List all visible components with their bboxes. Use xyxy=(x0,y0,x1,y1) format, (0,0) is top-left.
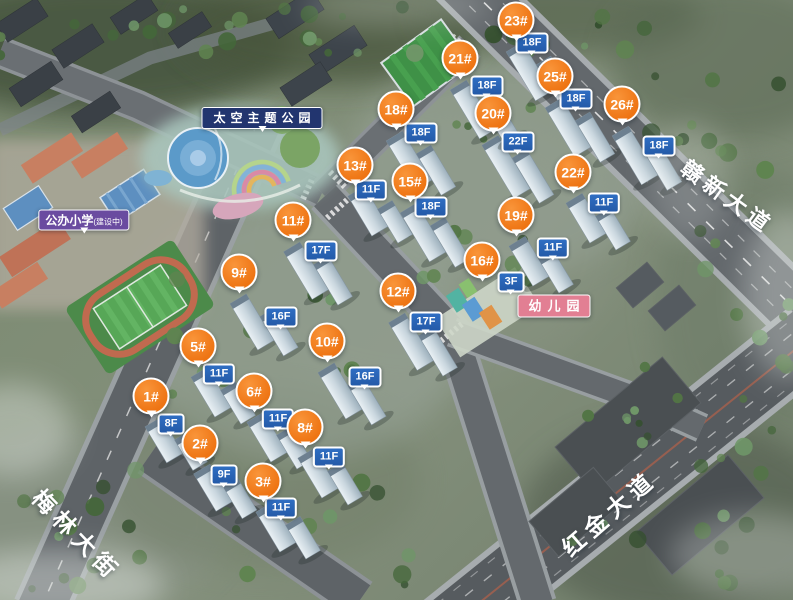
building-marker-18[interactable]: 18# xyxy=(378,91,415,128)
floor-badge-18: 18F xyxy=(405,123,438,144)
kindergarten-label: 幼儿园 xyxy=(517,295,590,318)
building-marker-13[interactable]: 13# xyxy=(337,147,374,184)
building-marker-22[interactable]: 22# xyxy=(555,154,592,191)
floor-badge-19: 11F xyxy=(537,238,569,259)
floor-badge-26: 18F xyxy=(643,136,676,157)
floor-badge-3: 11F xyxy=(265,498,297,519)
building-marker-23[interactable]: 23# xyxy=(498,2,535,39)
building-marker-1[interactable]: 1# xyxy=(133,378,170,415)
building-marker-16[interactable]: 16# xyxy=(464,242,501,279)
annotation-layer: 赣新大道 红金大道 梅林大街 太空主题公园 公办小学(建设中) 幼儿园 8F1#… xyxy=(0,0,793,600)
building-marker-20[interactable]: 20# xyxy=(475,95,512,132)
building-marker-26[interactable]: 26# xyxy=(604,86,641,123)
floor-badge-2: 9F xyxy=(211,465,238,486)
school-label: 公办小学(建设中) xyxy=(38,210,129,231)
building-marker-3[interactable]: 3# xyxy=(245,463,282,500)
site-plan: 赣新大道 红金大道 梅林大街 太空主题公园 公办小学(建设中) 幼儿园 8F1#… xyxy=(0,0,793,600)
floor-badge-10: 16F xyxy=(349,367,382,388)
road-name-hongjin-avenue: 红金大道 xyxy=(553,461,663,563)
floor-badge-11: 17F xyxy=(305,241,338,262)
building-marker-25[interactable]: 25# xyxy=(537,58,574,95)
park-label: 太空主题公园 xyxy=(201,107,322,129)
floor-badge-21: 18F xyxy=(471,76,504,97)
building-marker-6[interactable]: 6# xyxy=(236,373,273,410)
floor-badge-1: 8F xyxy=(158,414,185,435)
road-name-ganxin-avenue: 赣新大道 xyxy=(675,151,781,240)
building-marker-11[interactable]: 11# xyxy=(275,202,312,239)
floor-badge-9: 16F xyxy=(265,307,298,328)
floor-badge-15: 18F xyxy=(415,197,448,218)
floor-badge-20: 22F xyxy=(502,132,535,153)
building-marker-9[interactable]: 9# xyxy=(221,254,258,291)
building-marker-12[interactable]: 12# xyxy=(380,273,417,310)
school-label-text: 公办小学 xyxy=(45,213,93,227)
building-marker-21[interactable]: 21# xyxy=(442,40,479,77)
building-marker-5[interactable]: 5# xyxy=(180,328,217,365)
road-name-meilin-street: 梅林大街 xyxy=(25,480,130,587)
building-marker-19[interactable]: 19# xyxy=(498,197,535,234)
building-marker-15[interactable]: 15# xyxy=(392,163,429,200)
building-marker-2[interactable]: 2# xyxy=(182,425,219,462)
floor-badge-16: 3F xyxy=(498,272,525,293)
floor-badge-22: 11F xyxy=(588,193,620,214)
school-label-status: (建设中) xyxy=(93,217,122,226)
building-marker-8[interactable]: 8# xyxy=(287,409,324,446)
floor-badge-5: 11F xyxy=(203,364,235,385)
building-marker-10[interactable]: 10# xyxy=(309,323,346,360)
floor-badge-8: 11F xyxy=(313,447,345,468)
floor-badge-12: 17F xyxy=(410,312,443,333)
